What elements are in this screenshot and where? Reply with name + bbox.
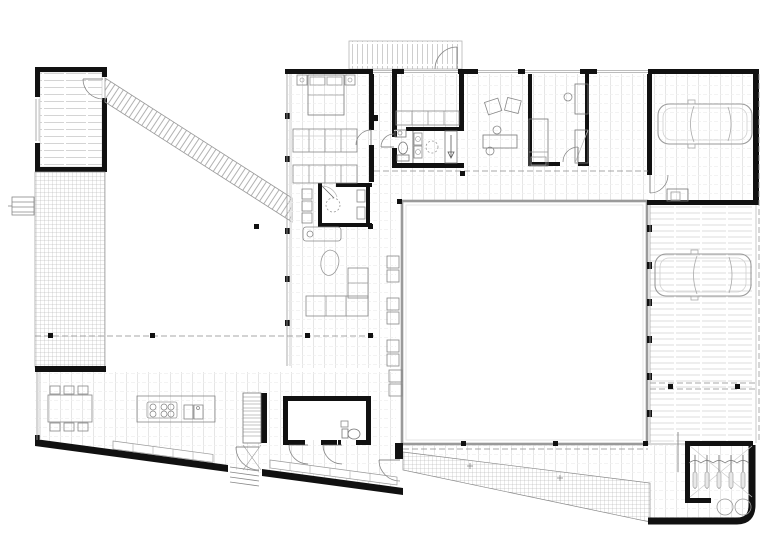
entrance-porch [349,41,462,69]
shower-room [322,186,366,223]
exterior-stair-left [8,197,34,215]
floor-plan-drawing [0,0,780,552]
annex-room [35,67,107,172]
floor-plan-page [0,0,780,552]
courtyard [402,201,647,444]
west-terrace [35,172,106,372]
plan-layers [0,0,780,552]
